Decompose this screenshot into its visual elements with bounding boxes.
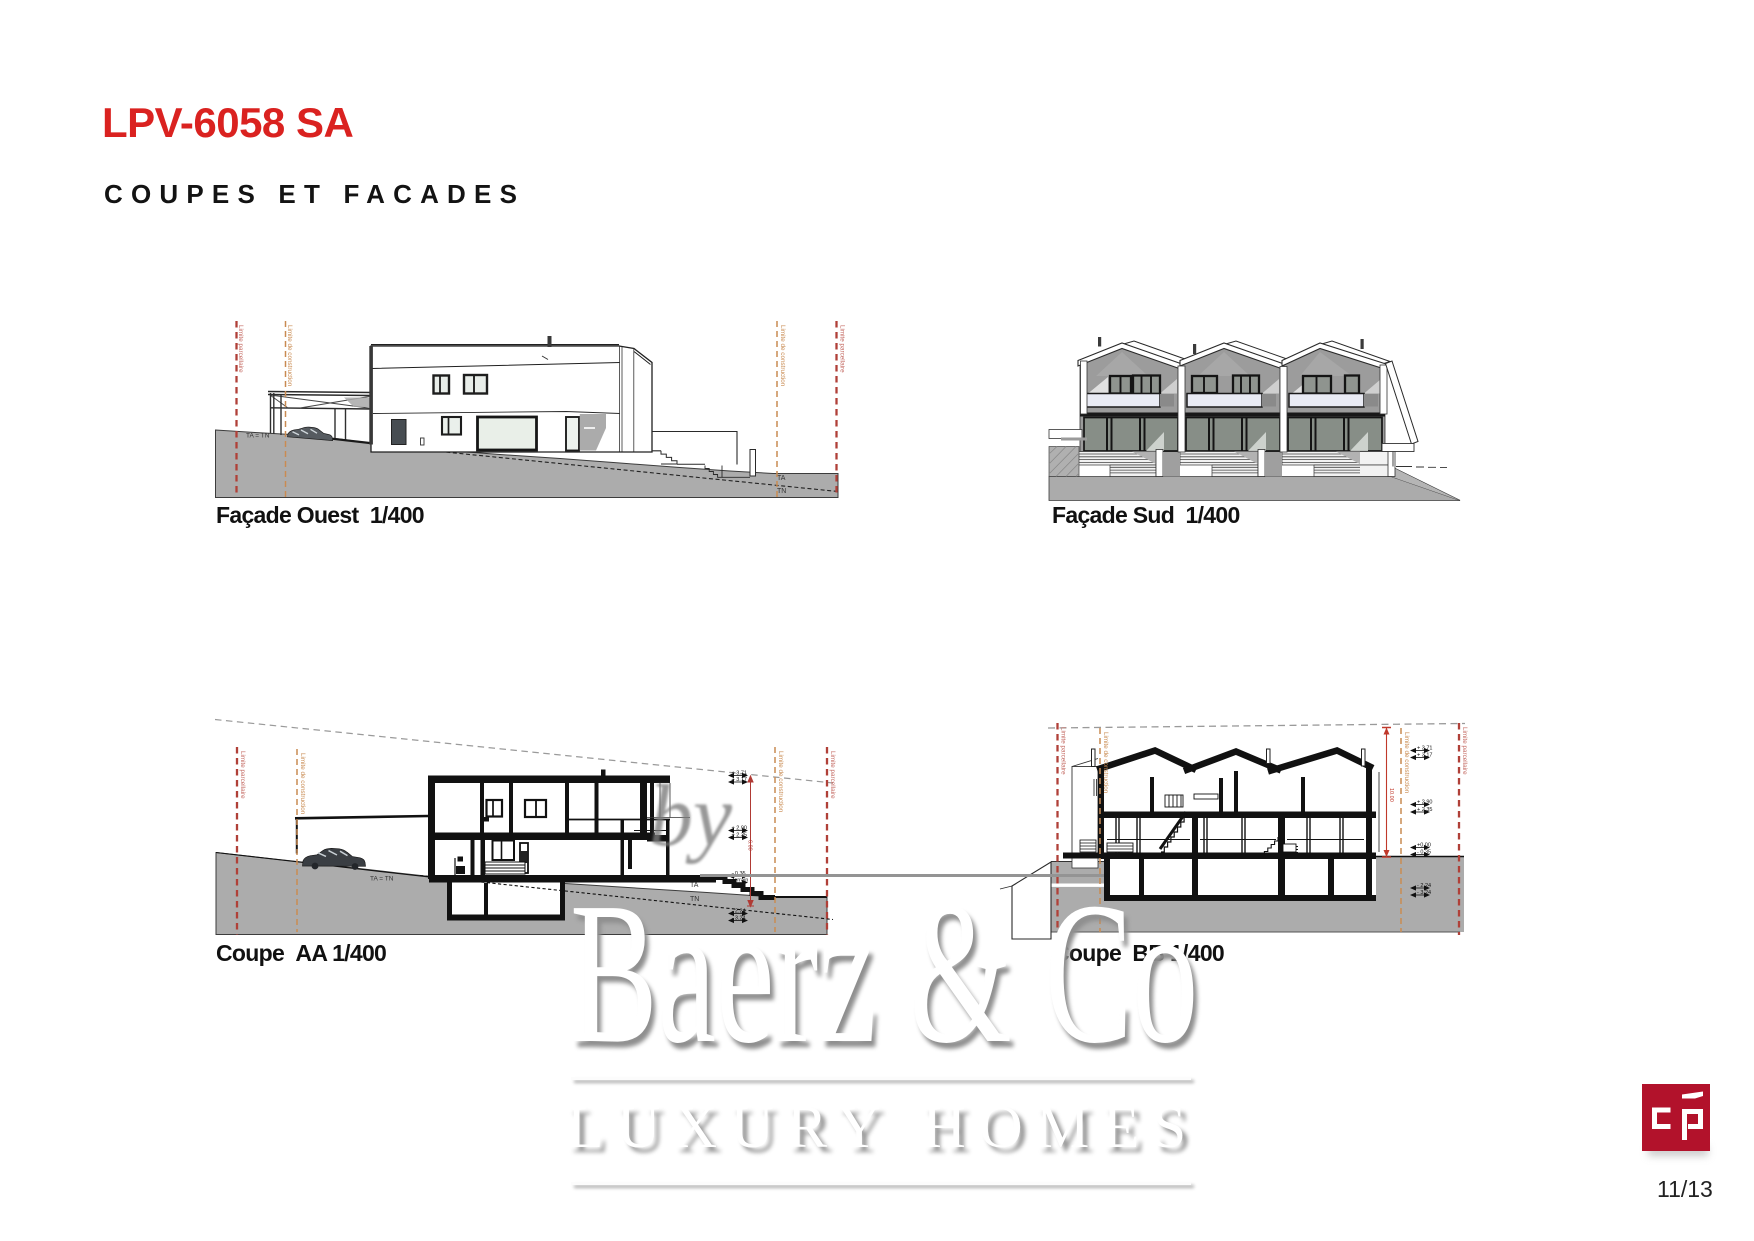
svg-text:Limite parcellaire: Limite parcellaire <box>239 751 246 799</box>
svg-text:Limite de construction: Limite de construction <box>299 753 306 815</box>
svg-text:Limite parcellaire: Limite parcellaire <box>829 751 836 799</box>
svg-text:+ 3.17: + 3.17 <box>732 777 747 783</box>
svg-text:10.00: 10.00 <box>1388 788 1394 802</box>
svg-text:+ 3.71: + 3.71 <box>1417 745 1432 751</box>
svg-text:Limite de construction: Limite de construction <box>777 751 784 813</box>
svg-text:TN: TN <box>777 488 786 495</box>
svg-text:TA = TN: TA = TN <box>370 876 394 883</box>
svg-text:Limite parcellaire: Limite parcellaire <box>839 325 846 373</box>
svg-text:Limite parcellaire: Limite parcellaire <box>1461 727 1468 775</box>
svg-text:+ 3.71: + 3.71 <box>732 770 747 776</box>
svg-text:TA: TA <box>777 475 786 482</box>
svg-text:Limite de construction: Limite de construction <box>1403 732 1410 794</box>
svg-text:TA = TN: TA = TN <box>246 433 270 440</box>
svg-text:- 0.35: - 0.35 <box>1417 849 1431 855</box>
svg-text:+ 2.35: + 2.35 <box>732 832 747 838</box>
svg-text:Limite parcellaire: Limite parcellaire <box>1060 727 1067 775</box>
svg-text:Limite de construction: Limite de construction <box>286 325 293 387</box>
svg-text:+ 2.90: + 2.90 <box>1417 799 1432 805</box>
svg-text:+0.00: +0.00 <box>1417 842 1431 848</box>
svg-text:- 2.24: - 2.24 <box>1417 883 1431 889</box>
svg-text:Limite parcellaire: Limite parcellaire <box>237 325 244 373</box>
svg-text:+ 3.17: + 3.17 <box>1417 752 1432 758</box>
svg-text:Limite de construction: Limite de construction <box>779 325 786 387</box>
svg-text:- 3.24: - 3.24 <box>1417 890 1431 896</box>
svg-text:Limite de construction: Limite de construction <box>1102 732 1109 794</box>
svg-text:+ 2.90: + 2.90 <box>732 825 747 831</box>
svg-text:+ 2.35: + 2.35 <box>1417 807 1432 813</box>
svg-text:6.00: 6.00 <box>747 840 753 851</box>
